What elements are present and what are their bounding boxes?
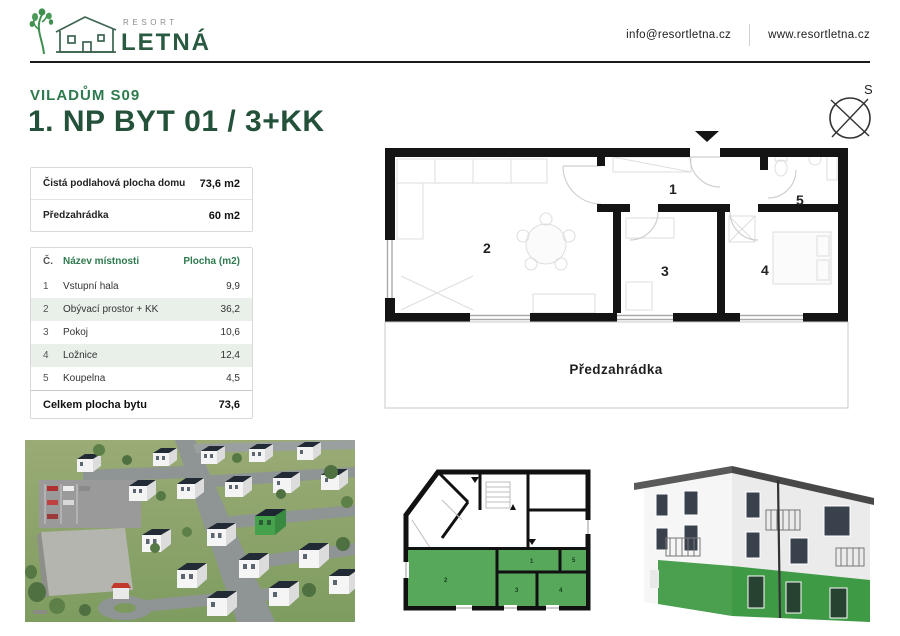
room-name: Vstupní hala — [63, 281, 180, 292]
kiosk — [111, 583, 131, 599]
logo-letna-text: LETNÁ — [121, 28, 211, 56]
room-label-4: 4 — [761, 262, 769, 278]
header-rule — [30, 61, 870, 63]
email-link[interactable]: info@resortletna.cz — [626, 29, 731, 41]
rooms-table-footer: Celkem plocha bytu 73,6 — [31, 390, 252, 418]
rooms-table: Č. Název místnosti Plocha (m2) 1 Vstupní… — [30, 247, 253, 419]
house-icon — [56, 17, 116, 52]
room-num: 1 — [43, 281, 63, 292]
room-area: 36,2 — [180, 304, 240, 315]
contacts-divider — [749, 24, 750, 46]
room-label-2: 2 — [483, 240, 491, 256]
table-row: 3 Pokoj 10,6 — [31, 321, 252, 344]
summary-table: Čistá podlahová plocha domu 73,6 m2 Před… — [30, 167, 253, 232]
table-row: 2 Obývací prostor + KK 36,2 — [31, 298, 252, 321]
room-num: 4 — [43, 350, 63, 361]
room-num: 2 — [43, 304, 63, 315]
room-num: 5 — [43, 373, 63, 384]
room-area: 4,5 — [180, 373, 240, 384]
col-header-name: Název místnosti — [63, 256, 180, 267]
summary-value: 60 m2 — [209, 210, 240, 222]
summary-row: Čistá podlahová plocha domu 73,6 m2 — [31, 168, 252, 199]
page-title: 1. NP BYT 01 / 3+KK — [28, 105, 325, 139]
room-num: 3 — [43, 327, 63, 338]
room-name: Ložnice — [63, 350, 180, 361]
summary-value: 73,6 m2 — [200, 178, 240, 190]
room-name: Obývací prostor + KK — [63, 304, 180, 315]
room-area: 9,9 — [180, 281, 240, 292]
header-contacts: info@resortletna.cz www.resortletna.cz — [626, 24, 870, 46]
balcony-right-mid — [766, 510, 800, 530]
floor-plan: 1 2 3 4 5 Předzahrádka — [383, 126, 853, 414]
green-band-left — [658, 560, 732, 616]
table-row: 1 Vstupní hala 9,9 — [31, 275, 252, 298]
aerial-render-image — [25, 440, 355, 622]
col-header-area: Plocha (m2) — [180, 256, 240, 267]
overview-plan-image: 1 2 3 4 5 — [398, 460, 596, 620]
table-row: 4 Ložnice 12,4 — [31, 344, 252, 367]
room-name: Koupelna — [63, 373, 180, 384]
table-row: 5 Koupelna 4,5 — [31, 367, 252, 390]
resort-letna-logo: RESORT LETNÁ — [28, 8, 228, 60]
website-link[interactable]: www.resortletna.cz — [768, 29, 870, 41]
compass-north-label: S — [864, 82, 873, 97]
brochure-page: RESORT LETNÁ info@resortletna.cz www.res… — [0, 0, 900, 636]
total-value: 73,6 — [219, 399, 240, 411]
room-area: 10,6 — [180, 327, 240, 338]
summary-label: Předzahrádka — [43, 210, 109, 221]
garden-label: Předzahrádka — [569, 362, 662, 377]
room-name: Pokoj — [63, 327, 180, 338]
col-header-num: Č. — [43, 256, 63, 267]
rooms-table-header: Č. Název místnosti Plocha (m2) — [31, 248, 252, 275]
room-area: 12,4 — [180, 350, 240, 361]
room-label-1: 1 — [669, 181, 677, 197]
total-label: Celkem plocha bytu — [43, 399, 147, 411]
logo-resort-text: RESORT — [123, 18, 178, 27]
summary-row: Předzahrádka 60 m2 — [31, 200, 252, 231]
room-label-5: 5 — [796, 192, 804, 208]
summary-label: Čistá podlahová plocha domu — [43, 178, 185, 189]
building-render-image — [628, 452, 876, 630]
room-label-3: 3 — [661, 263, 669, 279]
building-subtitle: VILADŮM S09 — [30, 87, 140, 104]
entry-arrow-icon — [695, 131, 719, 142]
tree-icon — [30, 8, 54, 54]
